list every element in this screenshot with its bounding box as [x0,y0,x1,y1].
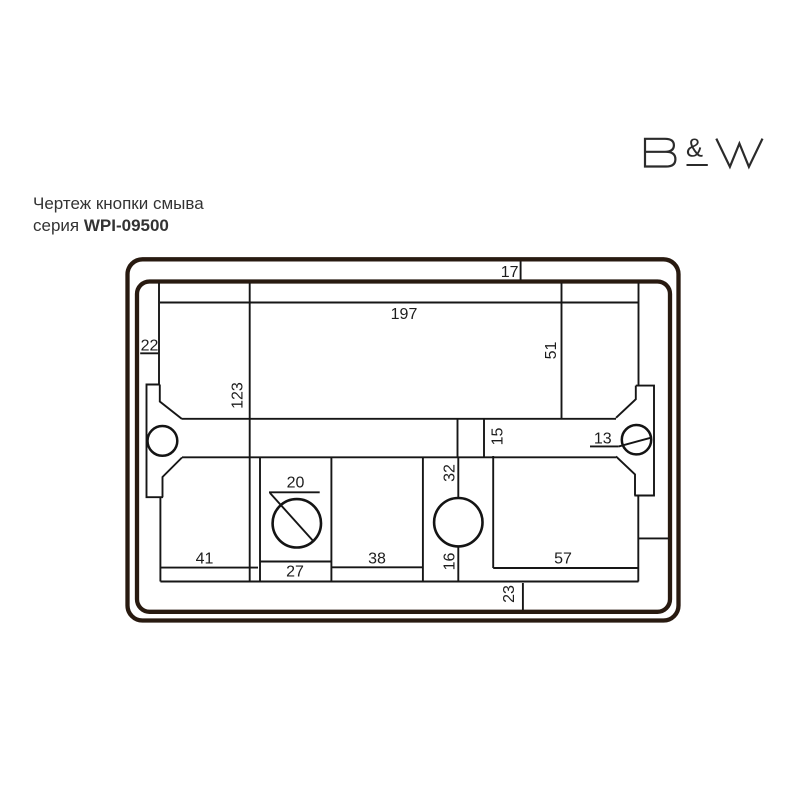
svg-text:16: 16 [442,553,459,571]
svg-text:41: 41 [196,551,214,568]
svg-text:серия WPI-09500: серия WPI-09500 [33,216,169,235]
svg-text:20: 20 [287,475,305,492]
svg-text:197: 197 [391,306,418,323]
svg-text:27: 27 [286,564,304,581]
svg-text:17: 17 [501,264,519,281]
svg-text:23: 23 [501,585,518,603]
svg-text:&: & [686,134,703,162]
svg-text:51: 51 [543,342,560,360]
svg-text:123: 123 [230,382,247,409]
svg-text:15: 15 [490,428,507,446]
svg-text:32: 32 [442,464,459,482]
svg-text:38: 38 [368,551,386,568]
svg-text:22: 22 [141,338,159,355]
svg-text:Чертеж кнопки смыва: Чертеж кнопки смыва [33,194,204,213]
svg-text:13: 13 [594,431,612,448]
svg-text:57: 57 [554,551,572,568]
